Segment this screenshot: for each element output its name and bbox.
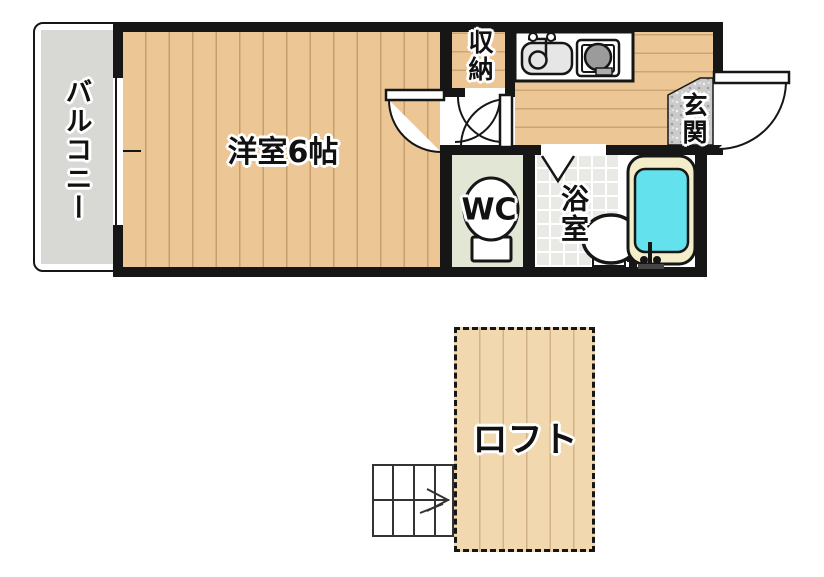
western-room-label: 洋室6帖 [228, 127, 339, 171]
stove-burner-icon [577, 40, 619, 76]
loft-label: ロフト [472, 412, 577, 463]
wc-label: WC [461, 193, 516, 228]
fixtures-overlay [0, 0, 824, 577]
storage-label: 収納 [461, 29, 497, 83]
entrance-door-icon [714, 72, 789, 149]
bath-door-icon [541, 144, 606, 181]
bathtub-icon [628, 156, 695, 269]
bathroom-label: 浴室 [553, 184, 593, 244]
floor-plan: バルコニー 洋室6帖 収納 玄関 WC 浴室 ロフト [0, 0, 824, 577]
balcony-label: バルコニー [57, 78, 96, 223]
entrance-label: 玄関 [675, 92, 711, 146]
door-swing-arc-icon [386, 90, 444, 152]
staircase-arrow-icon [373, 465, 453, 536]
